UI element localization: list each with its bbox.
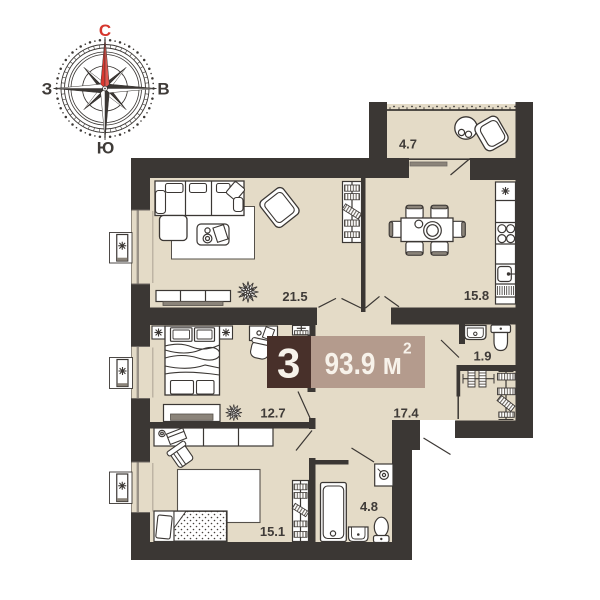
svg-text:15.1: 15.1: [260, 524, 285, 539]
svg-text:4.8: 4.8: [360, 499, 378, 514]
svg-text:В: В: [157, 80, 169, 99]
svg-text:21.5: 21.5: [282, 289, 307, 304]
svg-text:15.8: 15.8: [464, 288, 489, 303]
svg-text:З: З: [42, 80, 53, 99]
svg-text:4.7: 4.7: [399, 137, 417, 152]
svg-text:Ю: Ю: [97, 139, 115, 158]
svg-text:12.7: 12.7: [260, 406, 285, 421]
svg-text:93.9 м: 93.9 м: [325, 346, 403, 381]
svg-text:2: 2: [403, 341, 412, 358]
svg-text:С: С: [99, 21, 111, 40]
svg-text:1.9: 1.9: [473, 349, 491, 364]
svg-text:17.4: 17.4: [393, 406, 419, 421]
svg-text:3: 3: [277, 340, 300, 387]
